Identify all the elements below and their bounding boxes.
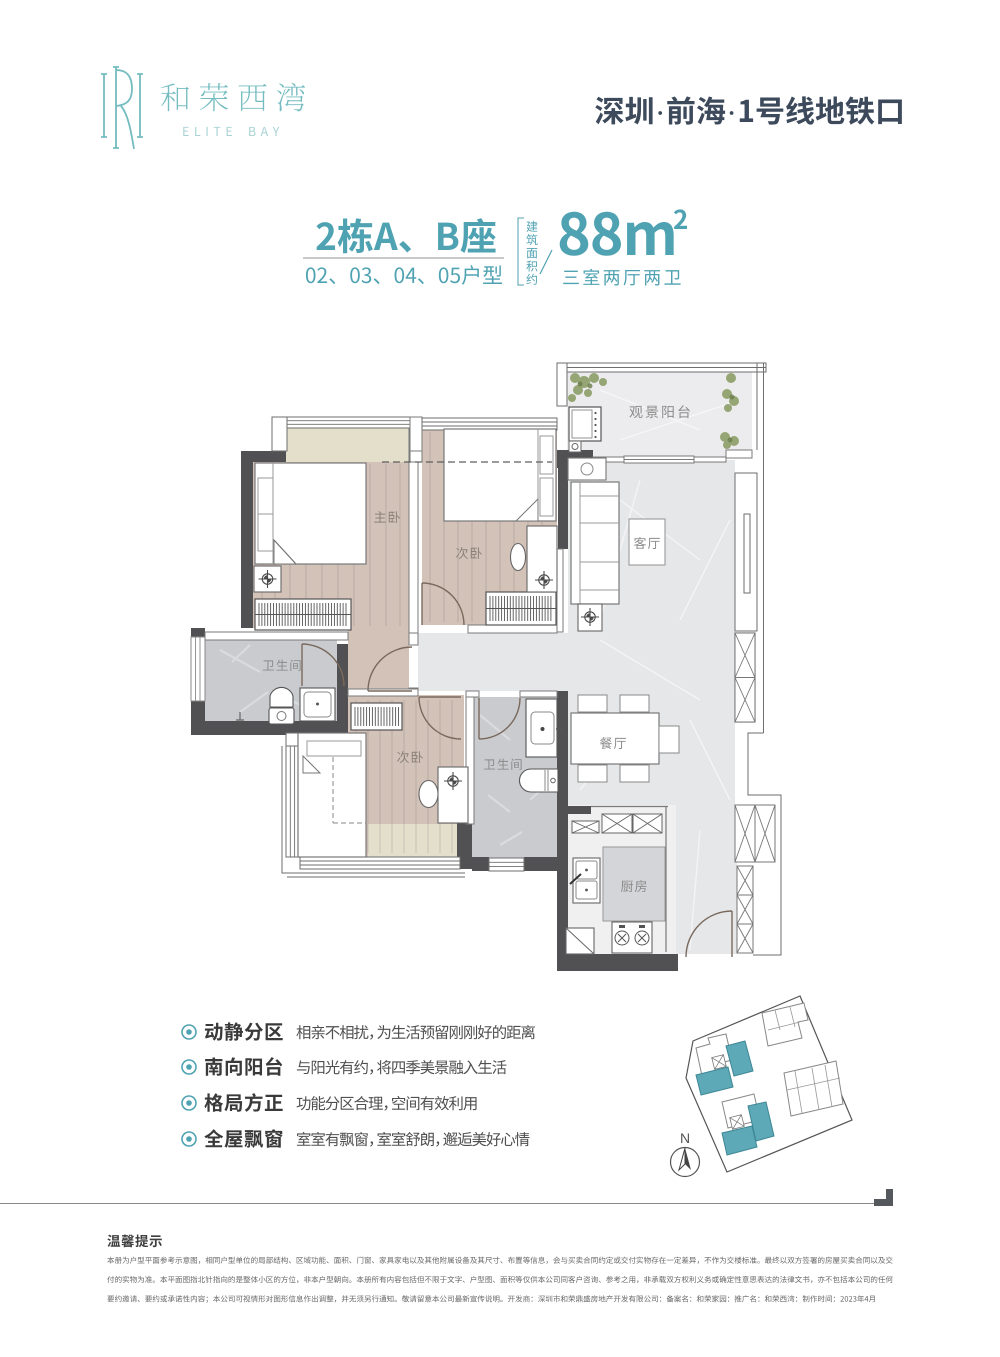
svg-text:N: N: [680, 1130, 690, 1146]
